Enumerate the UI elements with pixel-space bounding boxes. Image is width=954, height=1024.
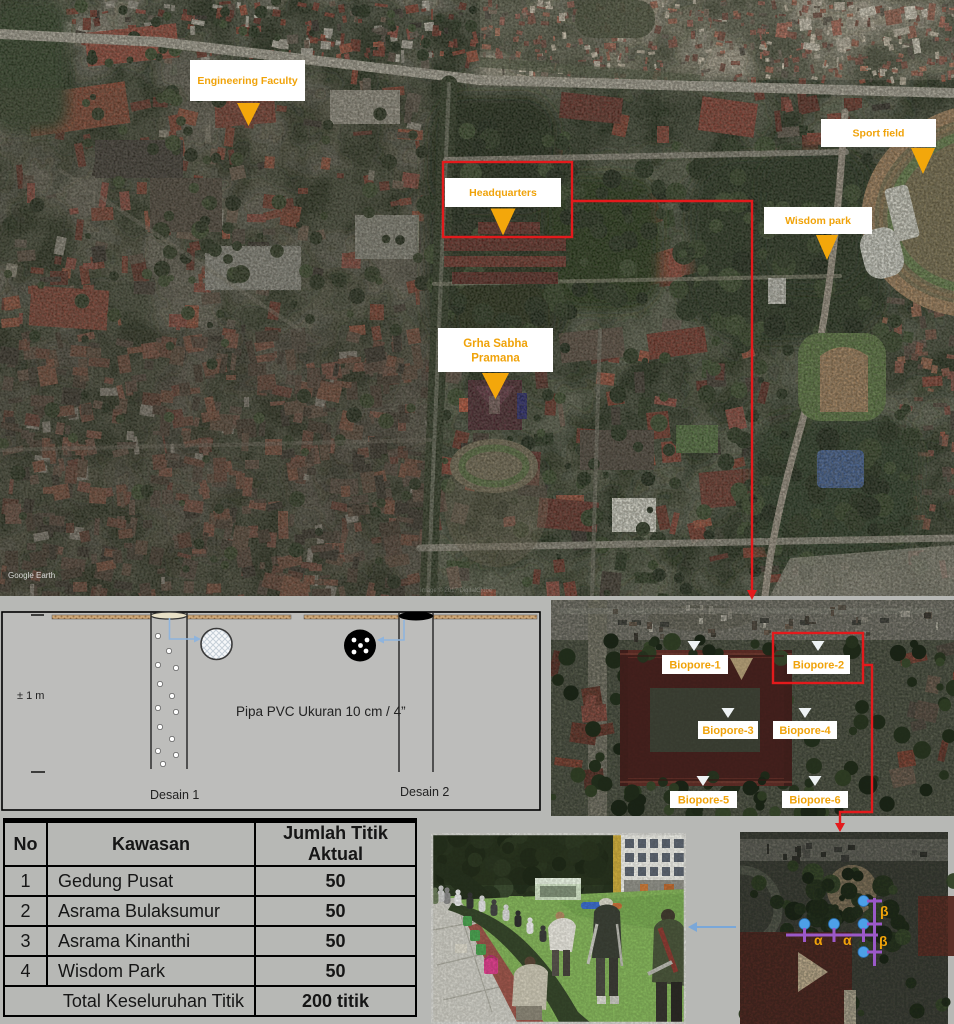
svg-text:Biopore-3: Biopore-3 [702, 725, 753, 737]
svg-text:Engineering Faculty: Engineering Faculty [197, 75, 298, 87]
svg-text:β: β [880, 903, 889, 919]
svg-text:Biopore-6: Biopore-6 [789, 795, 840, 807]
svg-text:Desain 2: Desain 2 [400, 785, 449, 799]
svg-text:Biopore-2: Biopore-2 [793, 660, 844, 672]
svg-text:α: α [814, 932, 823, 948]
svg-text:Biopore-1: Biopore-1 [669, 660, 720, 672]
svg-text:Google Earth: Google Earth [8, 571, 55, 580]
svg-text:Wisdom park: Wisdom park [785, 215, 851, 227]
svg-text:α: α [843, 932, 852, 948]
svg-text:± 1 m: ± 1 m [17, 690, 44, 702]
svg-text:Sport field: Sport field [853, 128, 905, 140]
svg-text:Image © 2017 DigitalGlobe: Image © 2017 DigitalGlobe [420, 587, 493, 594]
svg-text:Biopore-4: Biopore-4 [779, 725, 831, 737]
svg-text:β: β [879, 933, 888, 949]
svg-text:Headquarters: Headquarters [469, 187, 537, 199]
svg-text:Grha Sabha: Grha Sabha [463, 338, 528, 350]
svg-text:Pramana: Pramana [471, 352, 520, 364]
svg-text:Biopore-5: Biopore-5 [678, 795, 729, 807]
svg-text:Pipa PVC Ukuran 10 cm / 4”: Pipa PVC Ukuran 10 cm / 4” [236, 704, 406, 719]
svg-text:Desain 1: Desain 1 [150, 788, 199, 802]
